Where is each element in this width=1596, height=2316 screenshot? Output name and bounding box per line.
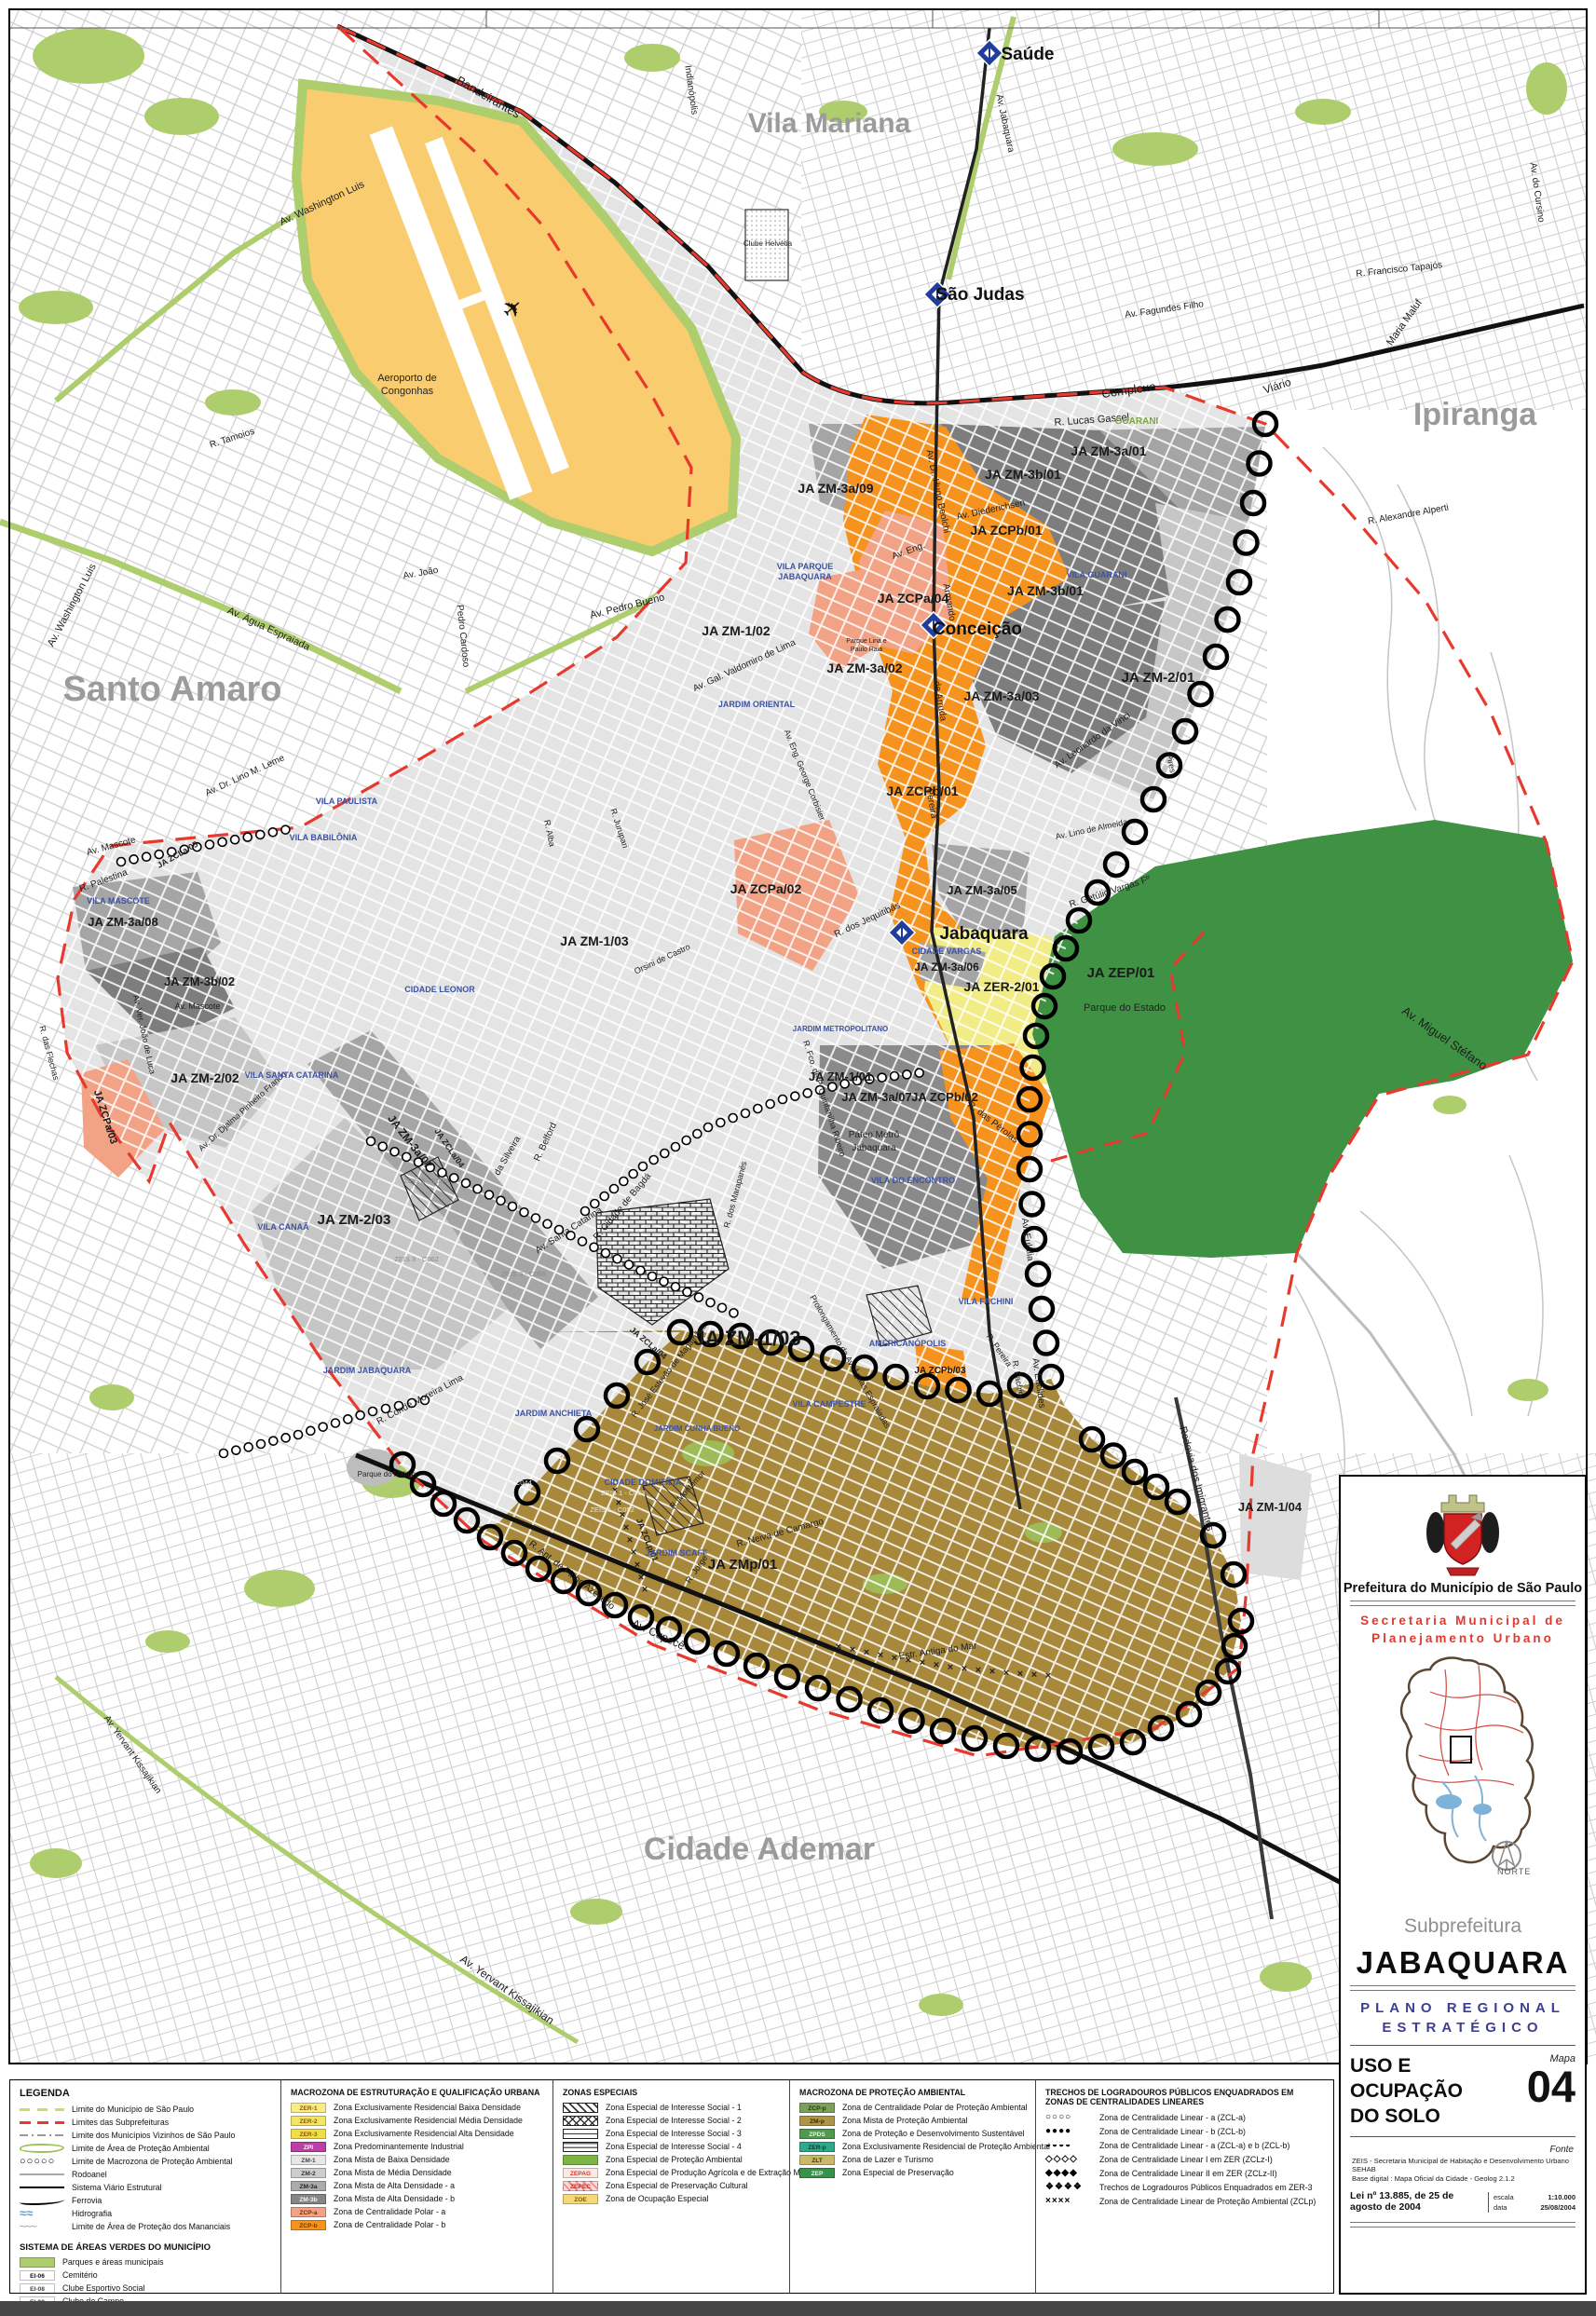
zclp-x-marker: × bbox=[975, 1665, 981, 1676]
map-label-zeis: ZEIS 3 - C050 bbox=[403, 1177, 448, 1185]
map-theme-title: USO E OCUPAÇÃO DO SOLO bbox=[1350, 2053, 1507, 2129]
map-label-zone: JA ZM-1/03 bbox=[560, 933, 629, 948]
legend-item-label: Zona Especial de Interesse Social - 4 bbox=[606, 2142, 742, 2151]
zcl-circle bbox=[915, 1069, 923, 1077]
zclp-x-marker: × bbox=[631, 1547, 636, 1559]
zcl-circle bbox=[369, 1408, 377, 1416]
zcl-circle bbox=[543, 1219, 552, 1228]
sym-hyd-symbol: ≈≈ bbox=[20, 2208, 64, 2219]
zcl-marker-glyphs: ×××× bbox=[1045, 2196, 1099, 2206]
map-label-zeisw: ZEIS 1 - C053 bbox=[601, 1489, 646, 1497]
map-label-zeis: ZEIS 3 - C062 bbox=[394, 1255, 439, 1263]
legend-item-label: Zona Mista de Média Densidade bbox=[334, 2168, 452, 2177]
zclp-x-marker: × bbox=[934, 1660, 939, 1671]
legend-swatch-pz1 bbox=[563, 2103, 598, 2113]
map-label-zone: JA ZMp/01 bbox=[708, 1557, 777, 1573]
map-label-area: VILA CANAÃ bbox=[257, 1222, 309, 1232]
map-label-park: Páteo Metrô bbox=[849, 1130, 900, 1140]
map-label-park: Parque do Nabuco bbox=[358, 1470, 420, 1478]
legend-linear-centrality-item: ◇◇◇◇Zona de Centralidade Linear I em ZER… bbox=[1045, 2152, 1326, 2166]
map-label-sta: São Judas bbox=[935, 285, 1024, 305]
legend-linear-centrality-item: ○○○○Zona de Centralidade Linear - a (ZCL… bbox=[1045, 2110, 1326, 2124]
zcl-circle bbox=[704, 1124, 713, 1132]
zcl-circle bbox=[661, 1150, 669, 1158]
legend-swatch-pz3 bbox=[563, 2129, 598, 2139]
map-label-zeisw: ZEIS 1 - C052 bbox=[590, 1505, 634, 1514]
map-label-area: JARDIM SCAFF bbox=[646, 1548, 709, 1558]
legend-zone-item: ZM-3bZona Mista de Alta Densidade - b bbox=[291, 2192, 547, 2205]
legend-green-area-item: EI-08Clube Esportivo Social bbox=[20, 2282, 275, 2295]
zcl-circle bbox=[206, 840, 214, 849]
zcl-circle bbox=[232, 1446, 240, 1454]
sym-thin-symbol bbox=[20, 2173, 64, 2175]
map-sheet: ××××××××× ×××××××××××××××× Vila MarianaI… bbox=[0, 0, 1596, 2316]
legend-linear-centrality-item: ◆◆◆◆Zona de Centralidade Linear II em ZE… bbox=[1045, 2166, 1326, 2180]
legend-line-item: Limites das Subprefeituras bbox=[20, 2116, 275, 2129]
legend-zone-item: ZPDSZona de Proteção e Desenvolvimento S… bbox=[799, 2127, 1030, 2140]
map-label-zone: JA ZCPa/04 bbox=[878, 591, 949, 606]
map-label-zone: JA ZM-1/04 bbox=[1238, 1500, 1303, 1514]
legend-special-zone-item: Zona Especial de Interesse Social - 1 bbox=[563, 2101, 784, 2114]
legend-item-label: Zona Especial de Preservação bbox=[842, 2168, 954, 2177]
zcl-circle bbox=[660, 1277, 668, 1286]
divider bbox=[1350, 2222, 1576, 2227]
legend-column-lines: LEGENDA Limite do Município de São Paulo… bbox=[10, 2080, 280, 2293]
zcl-circle bbox=[244, 1443, 252, 1451]
zcl-marker-glyphs: ◒◒◒◒ bbox=[1045, 2140, 1099, 2150]
map-label-zone: JA ZM-2/03 bbox=[318, 1212, 391, 1228]
legend-swatch-zer-3: ZER-3 bbox=[291, 2129, 326, 2139]
legend-zone-item: ZER-2Zona Exclusivamente Residencial Méd… bbox=[291, 2114, 547, 2127]
zcl-circle bbox=[532, 1214, 540, 1222]
zcl-circle bbox=[602, 1249, 610, 1258]
legend-zone-item: ZCP-aZona de Centralidade Polar - a bbox=[291, 2205, 547, 2218]
legend-zone-item: ZLTZona de Lazer e Turismo bbox=[799, 2153, 1030, 2166]
map-label-zone: JA ZER-2/01 bbox=[963, 979, 1039, 994]
legend-item-label: Zona Exclusivamente Residencial de Prote… bbox=[842, 2142, 1050, 2151]
sao-paulo-crest bbox=[1423, 1486, 1503, 1579]
legend-swatch-zep: ZEP bbox=[799, 2168, 835, 2178]
legend-line-item: ○○○○○Limite de Macrozona de Proteção Amb… bbox=[20, 2155, 275, 2168]
legend-swatch-zcp-b: ZCP-b bbox=[291, 2220, 326, 2230]
zcl-circle bbox=[307, 1426, 315, 1435]
map-label-area: JARDIM METROPOLITANO bbox=[793, 1025, 889, 1033]
legend-line-item: Limite dos Municípios Vizinhos de São Pa… bbox=[20, 2129, 275, 2142]
legend-linear-centrality-item: ❖❖❖❖Trechos de Logradouros Públicos Enqu… bbox=[1045, 2180, 1326, 2194]
legend-swatch-zer-2: ZER-2 bbox=[291, 2116, 326, 2126]
legend-item-label: Zona Especial de Interesse Social - 3 bbox=[606, 2129, 742, 2138]
legend-swatch-zm-p: ZM-p bbox=[799, 2116, 835, 2126]
zcl-circle bbox=[695, 1293, 703, 1301]
zcl-circle bbox=[520, 1208, 528, 1217]
zcl-circle bbox=[378, 1142, 387, 1151]
divider bbox=[1350, 2045, 1576, 2046]
zcl-circle bbox=[462, 1179, 471, 1188]
subprefecture-label: Subprefeitura bbox=[1341, 1915, 1585, 1938]
legend-item-label: Cemitério bbox=[62, 2270, 98, 2280]
map-label-park: Parque do Estado bbox=[1084, 1002, 1166, 1014]
legend-line-item: ≈≈Hidrografia bbox=[20, 2207, 275, 2220]
compass-label: NORTE bbox=[1497, 1867, 1531, 1876]
zcl-circle bbox=[672, 1283, 680, 1291]
legend-swatch bbox=[20, 2257, 55, 2268]
zcl-circle bbox=[672, 1143, 680, 1151]
map-label-zone: JA ZM-2/01 bbox=[1122, 670, 1195, 686]
map-label-sta: Jabaquara bbox=[939, 924, 1028, 944]
legend-swatch-ZEPAG: ZEPAG bbox=[563, 2168, 598, 2178]
map-label-area: VILA SANTA CATARINA bbox=[245, 1070, 339, 1080]
legend-item-label: Zona de Proteção e Desenvolvimento Suste… bbox=[842, 2129, 1025, 2138]
map-label-area: AMERICANÓPOLIS bbox=[869, 1338, 947, 1348]
legend-linear-centrality-item: ××××Zona de Centralidade Linear de Prote… bbox=[1045, 2194, 1326, 2208]
zcl-marker-glyphs: ●●●● bbox=[1045, 2126, 1099, 2136]
legend-item-label: Zona Predominantemente Industrial bbox=[334, 2142, 464, 2151]
map-label-sta: Saúde bbox=[1001, 45, 1054, 64]
zclp-x-marker: × bbox=[1017, 1669, 1023, 1680]
map-label-park: Jabaquara bbox=[852, 1143, 896, 1153]
legend-swatch-zpds: ZPDS bbox=[799, 2129, 835, 2139]
zcl-circle bbox=[610, 1185, 619, 1193]
zcl-circle bbox=[682, 1137, 690, 1145]
zclp-x-marker: × bbox=[1031, 1669, 1037, 1681]
legend-item-label: Trechos de Logradouros Públicos Enquadra… bbox=[1099, 2183, 1313, 2192]
map-label-zone: JA ZM-3b/02 bbox=[164, 974, 235, 988]
map-label-zone: JA ZM-3a/08 bbox=[88, 915, 157, 929]
zclp-x-marker: × bbox=[878, 1650, 883, 1661]
zclp-x-marker: × bbox=[920, 1657, 925, 1669]
legend-special-zone-item: ZEPAGZona Especial de Produção Agrícola … bbox=[563, 2166, 784, 2179]
zcl-circle bbox=[718, 1303, 727, 1312]
legend-swatch: EI-06 bbox=[20, 2270, 55, 2281]
fonte-word: Fonte bbox=[1341, 2145, 1585, 2155]
legend-green-area-item: Parques e áreas municipais bbox=[20, 2255, 275, 2268]
sym-blk-symbol bbox=[20, 2187, 64, 2189]
legend-item-label: Zona de Centralidade Linear - a (ZCL-a) … bbox=[1099, 2141, 1289, 2150]
zcl-circle bbox=[256, 830, 265, 838]
zcl-circle bbox=[497, 1196, 505, 1205]
map-number: 04 bbox=[1507, 2064, 1576, 2109]
legend-item-label: Zona de Centralidade Polar - b bbox=[334, 2220, 445, 2229]
sym-loop-symbol bbox=[20, 2144, 64, 2153]
map-label-area: JARDIM ANCHIETA bbox=[515, 1409, 593, 1418]
scale-date-box: escala1:10.000 data25/08/2004 bbox=[1488, 2192, 1576, 2213]
legend-item-label: Zona Exclusivamente Residencial Baixa De… bbox=[334, 2103, 521, 2112]
bottom-bar bbox=[0, 2301, 1596, 2316]
zclp-x-marker: × bbox=[892, 1653, 897, 1664]
map-label-zone: JA ZM-3a/07 bbox=[841, 1090, 911, 1104]
zcl-circle bbox=[590, 1243, 598, 1251]
legend-item-label: Zona de Centralidade Polar de Proteção A… bbox=[842, 2103, 1028, 2112]
sym-dy-symbol bbox=[20, 2108, 64, 2111]
legend-zone-item: ZM-3aZona Mista de Alta Densidade - a bbox=[291, 2179, 547, 2192]
legend-special-zone-item: Zona Especial de Interesse Social - 3 bbox=[563, 2127, 784, 2140]
municipality-minimap: NORTE bbox=[1341, 1653, 1585, 1902]
map-label-area: CIDADE VARGAS bbox=[912, 947, 982, 956]
legend-zone-item: ZM-pZona Mista de Proteção Ambiental bbox=[799, 2114, 1030, 2127]
legend-title: LEGENDA bbox=[20, 2088, 275, 2099]
legend-item-label: Zona Mista de Alta Densidade - b bbox=[334, 2194, 455, 2203]
zcl-circle bbox=[803, 1089, 812, 1097]
legend-swatch-ZOE: ZOE bbox=[563, 2194, 598, 2204]
zcl-circle bbox=[390, 1148, 399, 1156]
map-label-zeis: ZEIS 3 - C066 bbox=[501, 1270, 546, 1278]
map-label-area: JARDIM JABAQUARA bbox=[323, 1366, 412, 1375]
zclp-x-marker: × bbox=[989, 1667, 995, 1678]
map-label-road: Av. Mascote bbox=[175, 1001, 221, 1011]
map-label-area: VILA FACHINI bbox=[959, 1297, 1014, 1306]
map-label-zone: JA ZCPa/02 bbox=[730, 881, 802, 896]
legend-line-item: Ferrovia bbox=[20, 2194, 275, 2207]
map-label-dist: Santo Amaro bbox=[62, 670, 281, 709]
legend-item-label: Zona Exclusivamente Residencial Alta Den… bbox=[334, 2129, 514, 2138]
map-label-zone: JA ZM-3a/05 bbox=[947, 883, 1016, 897]
legend-item-label: Sistema Viário Estrutural bbox=[72, 2183, 162, 2192]
zcl-circle bbox=[319, 1423, 327, 1431]
map-label-dist: Cidade Ademar bbox=[644, 1832, 875, 1867]
map-label-park: Parque Lina e bbox=[846, 638, 887, 645]
plan-title: PLANO REGIONAL ESTRATÉGICO bbox=[1341, 1998, 1585, 2037]
legend-column-macrozona-ambiental: MACROZONA DE PROTEÇÃO AMBIENTAL ZCP-pZon… bbox=[789, 2080, 1035, 2293]
map-label-zone: JA ZM-1/02 bbox=[702, 623, 771, 638]
legend-special-zone-item: Zona Especial de Proteção Ambiental bbox=[563, 2153, 784, 2166]
zcl-circle bbox=[649, 1156, 658, 1165]
map-label-area: JARDIM ORIENTAL bbox=[718, 700, 796, 709]
legend-zone-item: ZCP-pZona de Centralidade Polar de Prote… bbox=[799, 2101, 1030, 2114]
map-label-zone: JA ZM-3b/01 bbox=[1007, 583, 1084, 598]
map-label-area: VILA CAMPESTRE bbox=[792, 1399, 866, 1409]
legend-column-macrozona-urbana: MACROZONA DE ESTRUTURAÇÃO E QUALIFICAÇÃO… bbox=[280, 2080, 552, 2293]
map-label-area: VILA BABILÔNIA bbox=[290, 832, 358, 842]
legend-zone-item: ZER-pZona Exclusivamente Residencial de … bbox=[799, 2140, 1030, 2153]
zcl-marker-glyphs: ◆◆◆◆ bbox=[1045, 2168, 1099, 2178]
legend-special-zone-item: ZOEZona de Ocupação Especial bbox=[563, 2192, 784, 2205]
legend-item-label: Zona de Centralidade Linear II em ZER (Z… bbox=[1099, 2169, 1277, 2178]
legend-item-label: Zona de Centralidade Linear I em ZER (ZC… bbox=[1099, 2155, 1273, 2164]
legend-item-label: Zona Especial de Interesse Social - 1 bbox=[606, 2103, 742, 2112]
legend-swatch-zcp-p: ZCP-p bbox=[799, 2103, 835, 2113]
sym-dg-symbol bbox=[20, 2134, 64, 2136]
legend-zone-item: ZM-1Zona Mista de Baixa Densidade bbox=[291, 2153, 547, 2166]
map-label-area: VILA DO ENCONTRO bbox=[871, 1176, 955, 1185]
zcl-circle bbox=[143, 852, 151, 861]
legend-column-zonas-especiais: ZONAS ESPECIAIS Zona Especial de Interes… bbox=[552, 2080, 789, 2293]
zclp-x-marker: × bbox=[836, 1642, 841, 1653]
zcl-circle bbox=[281, 1434, 290, 1442]
title-block: Prefeitura do Município de São Paulo Sec… bbox=[1339, 1475, 1587, 2295]
map-label-area: VILA GUARANI bbox=[1067, 570, 1127, 579]
source-line: Base digital : Mapa Oficial da Cidade - … bbox=[1341, 2173, 1585, 2184]
zcl-circle bbox=[648, 1273, 657, 1281]
legend-swatch-pzg bbox=[563, 2155, 598, 2165]
subprefecture-name: JABAQUARA bbox=[1341, 1945, 1585, 1981]
zclp-x-marker: × bbox=[864, 1647, 869, 1658]
map-label-zone: JA ZM-3a/02 bbox=[826, 661, 902, 675]
zcl-circle bbox=[828, 1083, 837, 1091]
legend: LEGENDA Limite do Município de São Paulo… bbox=[9, 2079, 1334, 2294]
zclp-x-marker: × bbox=[948, 1662, 953, 1673]
legend-zone-item: ZPIZona Predominantemente Industrial bbox=[291, 2140, 547, 2153]
legend-subtitle-green-areas: SISTEMA DE ÁREAS VERDES DO MUNICÍPIO bbox=[20, 2242, 275, 2253]
legend-item-label: Zona de Centralidade Linear - a (ZCL-a) bbox=[1099, 2113, 1246, 2122]
sym-wav-symbol: ~~~ bbox=[20, 2221, 64, 2232]
map-label-area: VILA PAULISTA bbox=[316, 797, 378, 806]
legend-item-label: Zona Mista de Alta Densidade - a bbox=[334, 2181, 455, 2190]
map-label-area: CIDADE LEONOR bbox=[404, 985, 475, 994]
map-label-zone: JA ZCPb/01 bbox=[970, 523, 1042, 538]
zcl-circle bbox=[620, 1178, 628, 1186]
legend-line-item: ~~~Limite de Área de Proteção dos Mananc… bbox=[20, 2220, 275, 2233]
zclp-x-marker: × bbox=[962, 1664, 967, 1675]
zcl-circle bbox=[903, 1070, 911, 1079]
zcl-circle bbox=[742, 1110, 750, 1118]
zcl-circle bbox=[117, 858, 126, 866]
map-label-zone: JA ZM-3a/01 bbox=[1071, 443, 1146, 458]
zcl-circle bbox=[891, 1072, 899, 1081]
zcl-circle bbox=[730, 1309, 738, 1317]
zcl-marker-glyphs: ○○○○ bbox=[1045, 2112, 1099, 2122]
map-label-park: Clube Helvétia bbox=[743, 239, 793, 248]
zclp-x-marker: × bbox=[627, 1534, 633, 1546]
legend-swatch-zpi: ZPI bbox=[291, 2142, 326, 2152]
legend-item-label: Rodoanel bbox=[72, 2170, 107, 2179]
legend-zone-item: ZCP-bZona de Centralidade Polar - b bbox=[291, 2218, 547, 2231]
legend-line-item: Sistema Viário Estrutural bbox=[20, 2181, 275, 2194]
zcl-circle bbox=[693, 1130, 702, 1138]
sym-circ-symbol: ○○○○○ bbox=[20, 2156, 64, 2167]
zcl-circle bbox=[332, 1419, 340, 1427]
zcl-circle bbox=[473, 1185, 482, 1193]
map-label-area: VILA PARQUE bbox=[777, 562, 834, 571]
zcl-circle bbox=[356, 1411, 364, 1420]
zcl-circle bbox=[344, 1415, 352, 1424]
map-label-zone: JA ZCPb/02 bbox=[911, 1090, 978, 1104]
zclp-x-marker: × bbox=[1003, 1668, 1009, 1679]
map-label-area: VILA MASCOTE bbox=[87, 896, 150, 906]
map-label-zeisw: ZEIS 1 - C050 bbox=[473, 1423, 518, 1431]
legend-item-label: Zona Especial de Proteção Ambiental bbox=[606, 2155, 743, 2164]
map-label-park: Aeroporto de bbox=[377, 373, 437, 384]
map-label-zone: JA ZEP/01 bbox=[1087, 965, 1155, 981]
legend-item-label: Parques e áreas municipais bbox=[62, 2257, 164, 2267]
map-label-zone: JA ZM-1/03 bbox=[693, 1327, 800, 1350]
legend-special-zone-item: Zona Especial de Interesse Social - 2 bbox=[563, 2114, 784, 2127]
legend-item-label: Zona Especial de Preservação Cultural bbox=[606, 2181, 748, 2190]
zcl-circle bbox=[766, 1100, 774, 1109]
zcl-circle bbox=[706, 1299, 715, 1307]
zcl-circle bbox=[269, 1437, 278, 1445]
legend-swatch: EI-08 bbox=[20, 2283, 55, 2294]
zcl-circle bbox=[683, 1287, 691, 1296]
legend-special-zone-item: Zona Especial de Interesse Social - 4 bbox=[563, 2140, 784, 2153]
zcl-circle bbox=[579, 1237, 587, 1246]
legend-linear-centrality-item: ◒◒◒◒Zona de Centralidade Linear - a (ZCL… bbox=[1045, 2138, 1326, 2152]
legend-linear-centrality-item: ●●●●Zona de Centralidade Linear - b (ZCL… bbox=[1045, 2124, 1326, 2138]
legend-special-zone-item: ZEPECZona Especial de Preservação Cultur… bbox=[563, 2179, 784, 2192]
zclp-x-marker: × bbox=[634, 1560, 640, 1571]
zcl-circle bbox=[636, 1266, 645, 1274]
map-label-zone: JA ZM-3a/03 bbox=[963, 688, 1039, 703]
zcl-circle bbox=[281, 825, 290, 834]
zcl-circle bbox=[438, 1168, 446, 1177]
legend-swatch-ZEPEC: ZEPEC bbox=[563, 2181, 598, 2191]
legend-item-label: Zona Mista de Baixa Densidade bbox=[334, 2155, 450, 2164]
zcl-circle bbox=[218, 838, 226, 846]
divider bbox=[1350, 1985, 1576, 1991]
legend-item-label: Ferrovia bbox=[72, 2196, 102, 2205]
map-label-zone: JA ZCPb/03 bbox=[914, 1366, 966, 1376]
map-label-zone: JA ZM-2/02 bbox=[171, 1070, 239, 1085]
legend-swatch-zm-3b: ZM-3b bbox=[291, 2194, 326, 2204]
zcl-circle bbox=[402, 1152, 411, 1161]
legend-swatch-zm-2: ZM-2 bbox=[291, 2168, 326, 2178]
zcl-circle bbox=[243, 833, 252, 841]
zcl-circle bbox=[600, 1192, 608, 1201]
legend-swatch-zlt: ZLT bbox=[799, 2155, 835, 2165]
legend-line-item: Limite de Área de Proteção Ambiental bbox=[20, 2142, 275, 2155]
zcl-circle bbox=[629, 1170, 637, 1178]
secretariat-name: Secretaria Municipal de Planejamento Urb… bbox=[1348, 1612, 1577, 1647]
organization-name: Prefeitura do Município de São Paulo bbox=[1341, 1581, 1585, 1596]
legend-item-label: Clube Esportivo Social bbox=[62, 2283, 145, 2293]
map-label-area: CIDADE DOMITÍLIA bbox=[605, 1478, 682, 1487]
legend-item-label: Zona de Centralidade Linear - b (ZCL-b) bbox=[1099, 2127, 1246, 2136]
source-line: ZEIS - Secretaria Municipal de Habitação… bbox=[1341, 2155, 1585, 2173]
zclp-x-marker: × bbox=[642, 1585, 648, 1596]
map-label-areag: GUARANI bbox=[1115, 416, 1159, 427]
zcl-circle bbox=[878, 1073, 886, 1082]
zcl-circle bbox=[791, 1092, 799, 1100]
legend-item-label: Limite dos Municípios Vizinhos de São Pa… bbox=[72, 2131, 235, 2140]
legend-item-label: Zona Especial de Produção Agrícola e de … bbox=[606, 2168, 820, 2177]
zcl-circle bbox=[268, 828, 277, 837]
map-label-area: JARDIM CUNHA BUENO bbox=[654, 1424, 741, 1433]
zclp-x-marker: × bbox=[638, 1572, 644, 1583]
zcl-circle bbox=[779, 1096, 787, 1104]
legend-column-centralidades-lineares: TRECHOS DE LOGRADOUROS PÚBLICOS ENQUADRA… bbox=[1035, 2080, 1331, 2293]
legend-zone-item: ZEPZona Especial de Preservação bbox=[799, 2166, 1030, 2179]
legend-item-label: Limites das Subprefeituras bbox=[72, 2118, 169, 2127]
zclp-x-marker: × bbox=[1045, 1670, 1051, 1682]
zcl-marker-glyphs: ◇◇◇◇ bbox=[1045, 2154, 1099, 2164]
zclp-x-marker: × bbox=[623, 1522, 629, 1533]
legend-swatch-pz2 bbox=[563, 2116, 598, 2126]
map-label-zeisw: ZEIS 1 - C044 bbox=[487, 1478, 532, 1487]
legend-green-area-item: EI-06Cemitério bbox=[20, 2268, 275, 2282]
zcl-circle bbox=[509, 1203, 517, 1211]
map-label-zone: JA ZCPb/01 bbox=[886, 783, 958, 798]
law-reference: Lei nº 13.885, de 25 de agosto de 2004 bbox=[1350, 2190, 1488, 2213]
map-label-park: Paulo Raia bbox=[851, 647, 882, 653]
zcl-circle bbox=[716, 1119, 725, 1127]
legend-item-label: Zona Exclusivamente Residencial Média De… bbox=[334, 2116, 523, 2125]
zcl-circle bbox=[729, 1114, 737, 1123]
legend-swatch-zer-1: ZER-1 bbox=[291, 2103, 326, 2113]
legend-line-item: Limite do Município de São Paulo bbox=[20, 2103, 275, 2116]
map-label-zone: JA ZM-3a/09 bbox=[798, 481, 873, 496]
zcl-circle bbox=[294, 1431, 303, 1439]
sym-dr-symbol bbox=[20, 2121, 64, 2124]
zcl-circle bbox=[485, 1191, 494, 1199]
legend-item-label: Hidrografia bbox=[72, 2209, 112, 2218]
legend-item-label: Limite de Área de Proteção dos Mananciai… bbox=[72, 2222, 230, 2231]
legend-zone-item: ZER-1Zona Exclusivamente Residencial Bai… bbox=[291, 2101, 547, 2114]
map-label-zone: JA ZM-3a/06 bbox=[914, 960, 979, 974]
legend-swatch-zer-p: ZER-p bbox=[799, 2142, 835, 2152]
map-label-area: JABAQUARA bbox=[778, 572, 832, 581]
map-label-dist: Vila Mariana bbox=[748, 108, 911, 139]
zcl-circle bbox=[130, 855, 138, 864]
map-label-sta: Conceição bbox=[933, 620, 1022, 639]
